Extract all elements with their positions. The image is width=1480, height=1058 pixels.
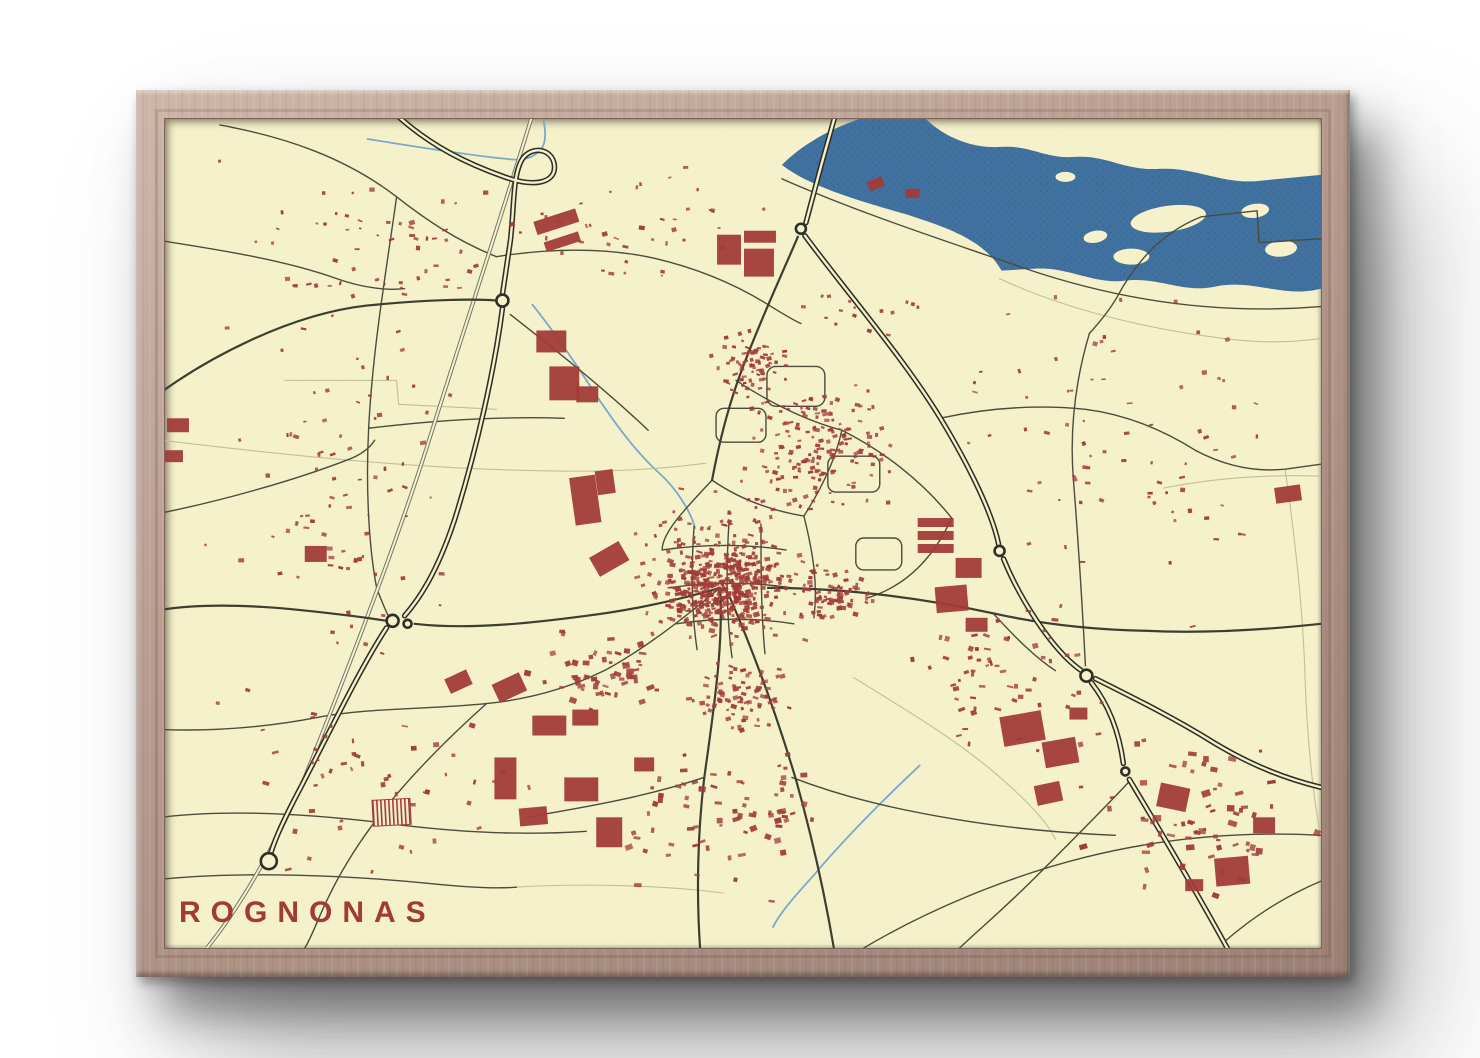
greenhouse (372, 798, 411, 826)
map-area: ROGNONAS (164, 118, 1322, 949)
map-title: ROGNONAS (179, 896, 436, 930)
poster-frame: ROGNONAS (136, 90, 1350, 977)
framed-map-poster: ROGNONAS (136, 90, 1350, 977)
map-canvas (165, 119, 1321, 948)
